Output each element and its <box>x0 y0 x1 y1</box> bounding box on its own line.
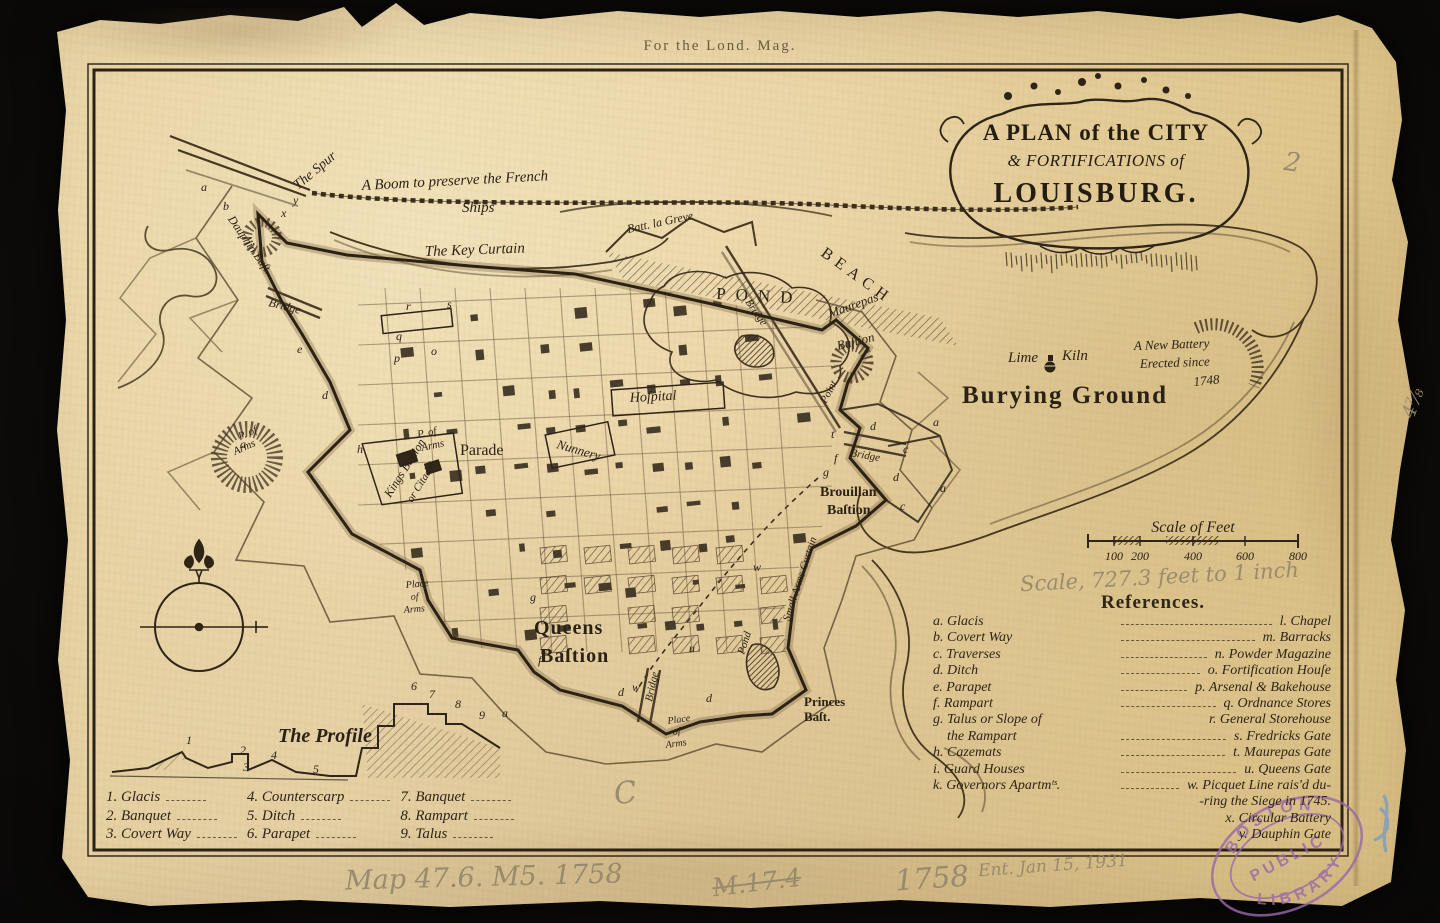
profile-number: 3 <box>242 760 249 774</box>
label-queens-bastion: Baſtion <box>540 645 609 667</box>
map-letter: a <box>502 706 508 720</box>
label-small-arms-curtain: Small Arms Curtain <box>781 535 820 623</box>
label-new-battery-1: A New Battery <box>1133 335 1210 353</box>
map-letter: w <box>753 560 761 574</box>
label-batt-la-greve: Batt. la Greve <box>626 208 695 236</box>
profile-number: 8 <box>455 697 461 711</box>
profile-number: 4 <box>271 748 277 762</box>
map-letter: a <box>240 437 246 451</box>
label-kiln: Kiln <box>1061 348 1088 364</box>
lime-kiln-icon <box>1045 355 1057 373</box>
map-letter: d <box>706 691 713 705</box>
label-lime: Lime <box>1007 350 1038 366</box>
compass-rose-icon <box>140 540 268 671</box>
map-letter: u <box>689 641 695 655</box>
map-letter: y <box>292 193 299 207</box>
scale-tick-label: 800 <box>1289 549 1307 563</box>
profile-number: 7 <box>429 687 436 701</box>
label-hospital: Hoſpital <box>628 389 676 406</box>
map-letter: x <box>280 206 287 220</box>
scale-tick-label: 200 <box>1131 549 1149 563</box>
scale-bar: Scale of Feet 100200400600800 <box>1088 519 1307 563</box>
label-princes-bast: Baſt. <box>804 709 830 724</box>
label-boom-line1: A Boom to preserve the French <box>360 168 548 194</box>
label-boom-line2: Ships <box>462 200 495 216</box>
map-letter: r <box>406 299 411 313</box>
scale-title: Scale of Feet <box>1151 519 1235 536</box>
scale-tick-label: 600 <box>1236 549 1254 563</box>
scale-tick-label: 400 <box>1184 549 1202 563</box>
map-letter: d <box>322 388 329 402</box>
profile-number: 1 <box>186 733 192 747</box>
label-brouillan: Brouillan <box>820 485 877 500</box>
label-nunnery: Nunnery <box>554 436 602 463</box>
map-letter: d <box>893 470 900 484</box>
map-letter: p <box>393 351 400 365</box>
map-letter: a <box>201 180 207 194</box>
profile-number: 2 <box>240 743 246 757</box>
label-burying-ground: Burying Ground <box>962 382 1168 409</box>
map-letter: w <box>632 680 640 694</box>
label-queens: Queens <box>534 617 603 639</box>
map-letter: h <box>357 442 363 456</box>
map-letter: c <box>900 499 906 513</box>
scale-tick-label: 100 <box>1105 549 1123 563</box>
label-princes: Princes <box>804 694 845 709</box>
map-letter: s <box>447 297 452 311</box>
map-neatline-border <box>88 64 1348 856</box>
map-letter: o <box>431 344 437 358</box>
map-letter: g <box>530 590 536 604</box>
label-place-west-1: Place <box>404 578 429 591</box>
label-key-curtain: The Key Curtain <box>425 241 525 260</box>
map-letter: d <box>870 419 877 433</box>
map-letter: d <box>618 685 625 699</box>
map-letter: a <box>940 481 946 495</box>
cartouche-ornament <box>940 73 1261 273</box>
scanned-map-photo: 123456789 Scale of Feet 100200400600800 <box>0 0 1440 923</box>
label-place-south-3: Arms <box>664 737 688 751</box>
label-the-spur: The Spur <box>291 148 340 193</box>
profile-number: 5 <box>313 762 319 776</box>
map-engraving: 123456789 Scale of Feet 100200400600800 <box>0 0 1440 923</box>
map-letter: f <box>834 451 839 465</box>
label-place-west-2: of <box>410 591 420 603</box>
profile-number: 9 <box>479 708 485 722</box>
label-place-west-3: Arms <box>402 603 425 616</box>
map-letter: c <box>903 442 909 456</box>
label-brouillan-bastion: Baſtion <box>827 503 871 518</box>
library-stamp: BOSTON PUBLIC LIBRARY <box>1191 770 1382 923</box>
blue-crayon-mark <box>1374 795 1388 852</box>
label-new-battery-2: Erected since <box>1139 354 1211 371</box>
label-new-battery-3: 1748 <box>1193 371 1221 389</box>
label-the-profile: The Profile <box>278 725 372 747</box>
profile-number: 6 <box>411 679 417 693</box>
map-letter: e <box>297 342 303 356</box>
map-letter: b <box>223 199 229 213</box>
label-parade: Parade <box>460 442 504 459</box>
map-letter: a <box>933 415 939 429</box>
map-letter: q <box>396 329 402 343</box>
map-letter: g <box>823 465 829 479</box>
